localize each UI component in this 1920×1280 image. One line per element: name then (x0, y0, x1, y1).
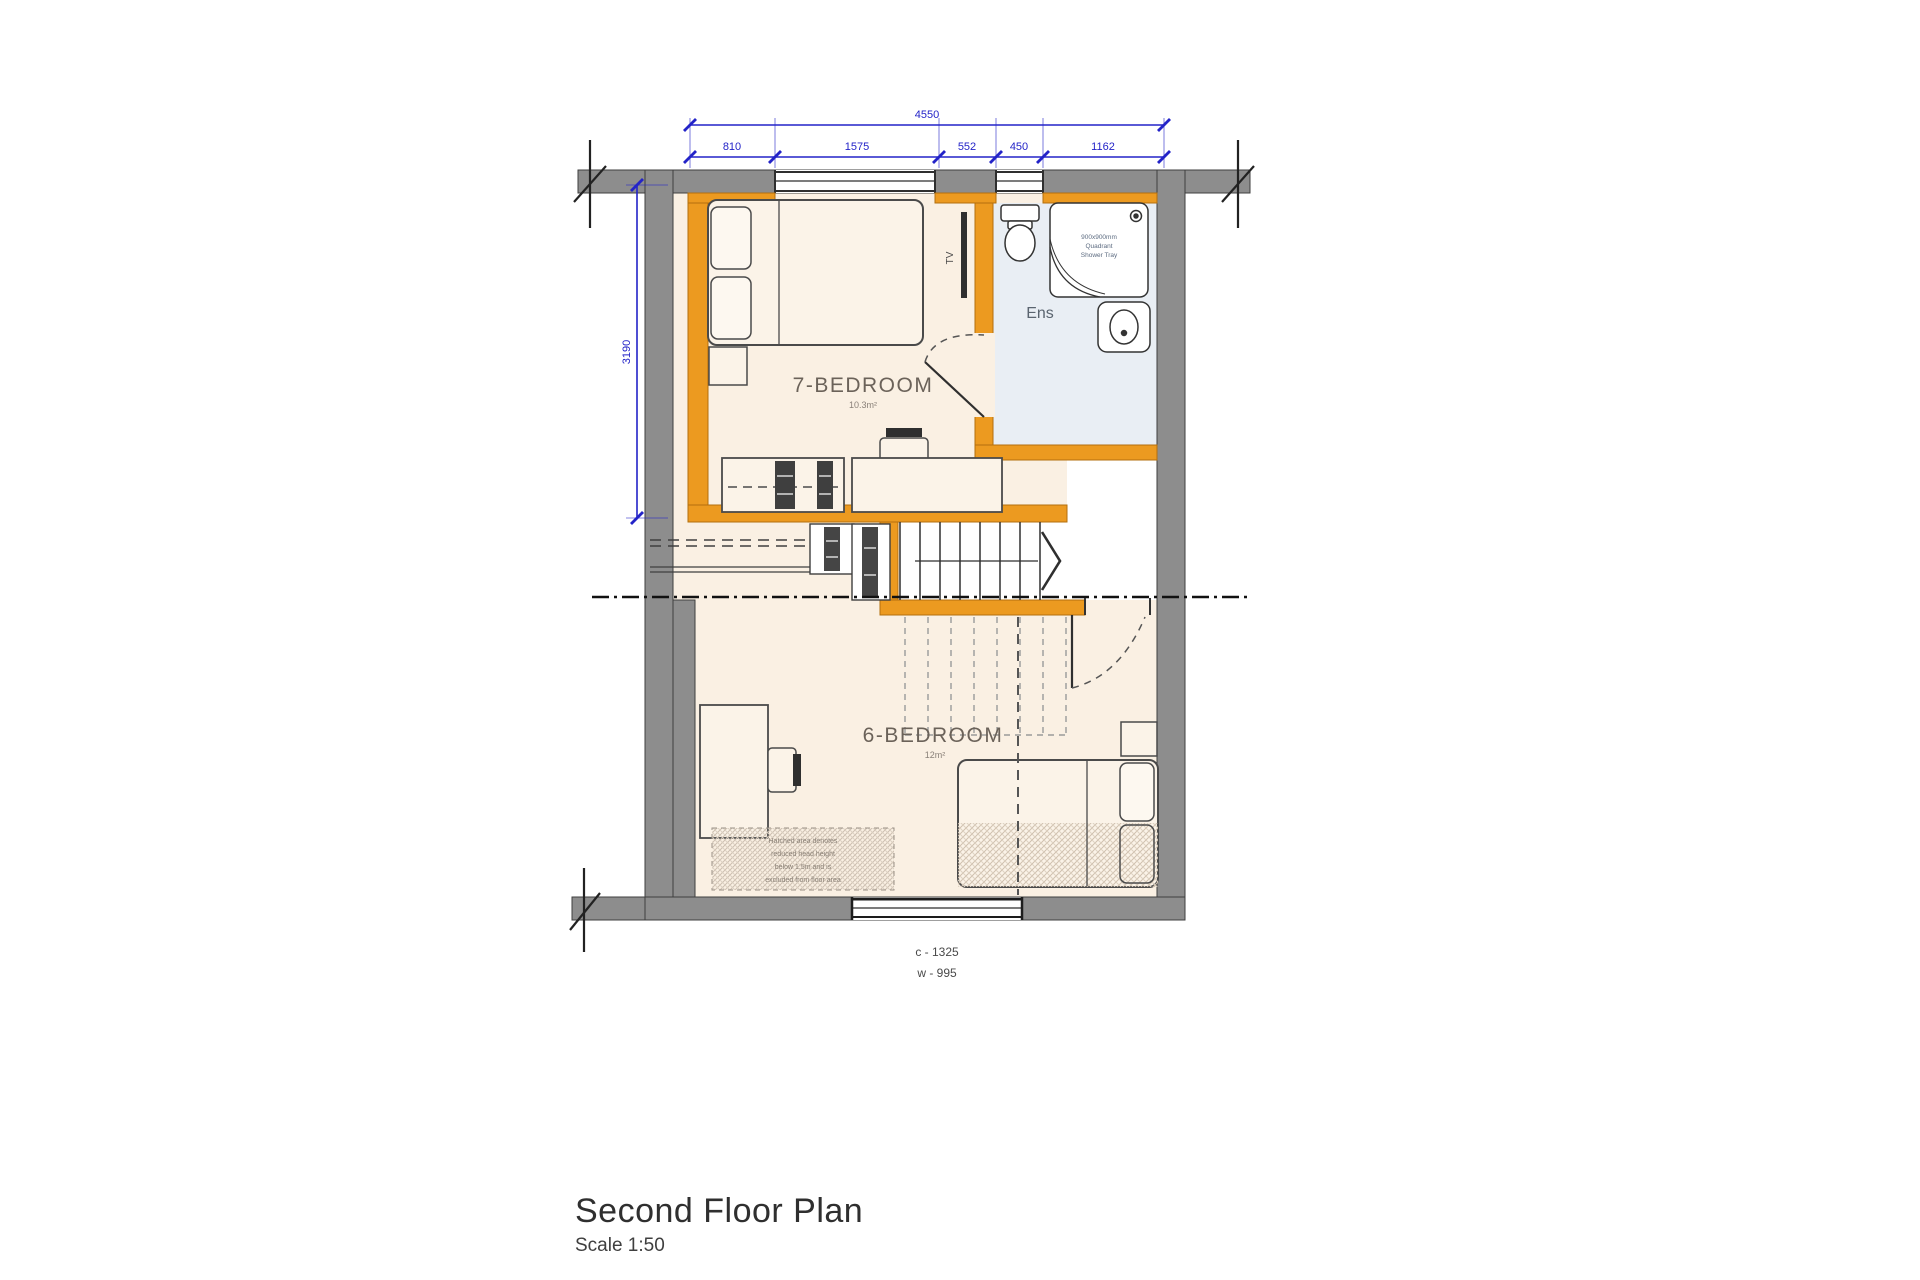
bedroom7-label: 7-BEDROOM (793, 374, 934, 397)
shower-label-line2: Quadrant (1085, 243, 1112, 250)
ensuite-west-wall-lower (975, 415, 993, 445)
dim-overall-height: 3190 (621, 340, 633, 364)
ensuite-label: Ens (1026, 305, 1054, 322)
bed6-bedside-unit (1121, 722, 1157, 756)
bed7-desk (852, 458, 1002, 512)
washbasin (1098, 302, 1150, 352)
bed7-pillow-top (711, 207, 751, 269)
eaves-note-line2: reduced head height (771, 851, 835, 858)
quadrant-shower (1050, 203, 1148, 297)
bed6-desk (700, 705, 768, 838)
bedroom7-area: 10.3m² (849, 400, 877, 410)
dim-overall-width: 4550 (915, 109, 939, 121)
landing-floor (1067, 460, 1157, 600)
drawing-title: Second Floor Plan (575, 1192, 863, 1231)
eaves-note-line4: excluded from floor area (765, 877, 841, 884)
bed7-bedside-unit (709, 347, 747, 385)
ensuite-door-opening (973, 333, 995, 417)
floor-plan-drawing: Hatched area denotes reduced head height… (0, 0, 1920, 1280)
dim-seg-1575: 1575 (845, 141, 869, 153)
shower-label-line1: 900x900mm (1081, 234, 1117, 241)
dim-seg-552: 552 (958, 141, 976, 153)
floor-plan-page: Hatched area denotes reduced head height… (0, 0, 1920, 1280)
dim-seg-1162: 1162 (1091, 141, 1115, 153)
right-wall (1157, 170, 1185, 920)
bed6-chair-seat (768, 748, 796, 792)
top-window-large (775, 170, 935, 193)
left-wall (645, 170, 673, 920)
top-left-wall-stub (578, 170, 645, 193)
drawing-scale: Scale 1:50 (575, 1235, 863, 1257)
ensuite-north-lining (1043, 193, 1157, 203)
eaves-note-line3: below 1.5m and is (775, 864, 832, 871)
bedroom6-area: 12m² (925, 750, 946, 760)
tv-unit (961, 212, 967, 298)
shower-label-line3: Shower Tray (1081, 252, 1118, 259)
eaves-note-area: Hatched area denotes reduced head height… (712, 828, 894, 890)
tv-label: TV (945, 251, 956, 264)
left-wall-lower-thickening (673, 600, 695, 897)
toilet (1001, 205, 1039, 261)
bed7-drawer-strip2 (817, 461, 833, 509)
window-cill-label: c - 1325 (915, 945, 959, 959)
bed6-lowheadroom-hatch (958, 823, 1158, 887)
eaves-note-line1: Hatched area denotes (769, 838, 838, 845)
top-window-small (996, 170, 1043, 193)
bedroom6-label: 6-BEDROOM (863, 724, 1004, 747)
bottom-window (852, 897, 1022, 920)
bed6-pillow-top (1120, 763, 1154, 821)
bed6-chair-back (793, 754, 801, 786)
dim-seg-450: 450 (1010, 141, 1028, 153)
title-block: Second Floor Plan Scale 1:50 (575, 1192, 863, 1257)
dim-seg-810: 810 (723, 141, 741, 153)
window-width-label: w - 995 (916, 966, 957, 980)
bed7-pillow-bottom (711, 277, 751, 339)
ensuite-west-wall-upper (975, 203, 993, 335)
bed7-west-lining (688, 193, 708, 522)
bed7-north-lining-right (935, 193, 996, 203)
bed7-drawer-strip1 (775, 461, 795, 509)
stairwell-south-wall (880, 600, 1085, 615)
bed7-chair-back (886, 428, 922, 437)
